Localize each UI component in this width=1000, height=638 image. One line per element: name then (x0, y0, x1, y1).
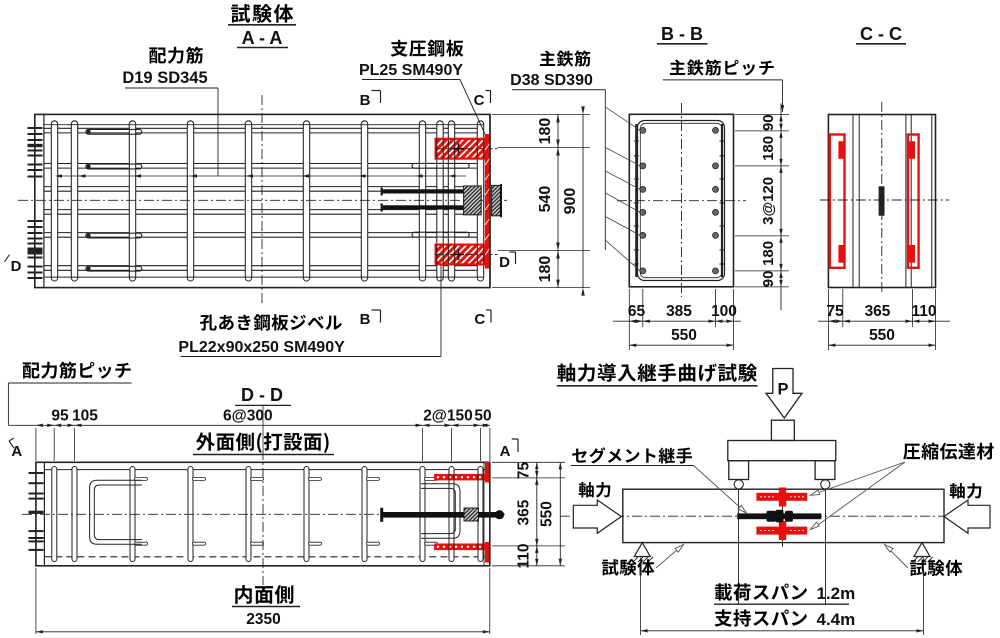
svg-text:90: 90 (760, 114, 777, 131)
svg-text:B: B (360, 311, 371, 328)
svg-text:A: A (500, 443, 511, 460)
svg-text:180: 180 (760, 241, 777, 266)
svg-text:95: 95 (51, 408, 69, 425)
svg-text:365: 365 (865, 303, 891, 320)
svg-text:50: 50 (474, 408, 491, 425)
svg-text:105: 105 (72, 408, 98, 425)
svg-text:180: 180 (537, 118, 554, 145)
svg-text:C: C (474, 311, 485, 328)
svg-text:385: 385 (666, 303, 692, 320)
svg-text:A: A (11, 443, 22, 460)
svg-text:D38 SD390: D38 SD390 (510, 72, 593, 89)
svg-text:540: 540 (537, 186, 554, 213)
svg-text:C: C (474, 92, 485, 109)
svg-text:D: D (499, 254, 510, 271)
svg-text:D19 SD345: D19 SD345 (122, 69, 207, 87)
svg-text:C - C: C - C (860, 24, 902, 44)
svg-text:D - D: D - D (241, 385, 283, 405)
svg-text:110: 110 (516, 543, 533, 568)
svg-text:100: 100 (711, 303, 737, 320)
svg-text:75: 75 (826, 303, 844, 320)
svg-text:6@300: 6@300 (223, 408, 273, 425)
svg-text:90: 90 (760, 271, 777, 288)
svg-text:2@150: 2@150 (423, 408, 473, 425)
svg-text:550: 550 (671, 327, 697, 344)
svg-text:P: P (777, 381, 788, 399)
svg-text:B - B: B - B (661, 24, 703, 44)
svg-text:A - A: A - A (242, 28, 283, 48)
svg-text:110: 110 (911, 303, 936, 320)
svg-text:B: B (360, 92, 371, 109)
svg-text:75: 75 (516, 462, 533, 480)
svg-text:180: 180 (537, 256, 554, 283)
svg-text:PL22x90x250 SM490Y: PL22x90x250 SM490Y (178, 339, 345, 356)
svg-text:900: 900 (562, 188, 579, 215)
svg-text:2350: 2350 (246, 611, 280, 628)
svg-text:180: 180 (760, 136, 777, 161)
svg-text:65: 65 (628, 303, 646, 320)
svg-text:365: 365 (516, 499, 533, 525)
svg-text:3@120: 3@120 (760, 177, 777, 225)
svg-text:4.4m: 4.4m (817, 610, 856, 629)
svg-text:PL25 SM490Y: PL25 SM490Y (359, 62, 463, 79)
svg-text:550: 550 (869, 327, 895, 344)
svg-text:1.2m: 1.2m (817, 584, 856, 603)
svg-text:D: D (11, 258, 22, 275)
svg-text:550: 550 (539, 501, 556, 527)
